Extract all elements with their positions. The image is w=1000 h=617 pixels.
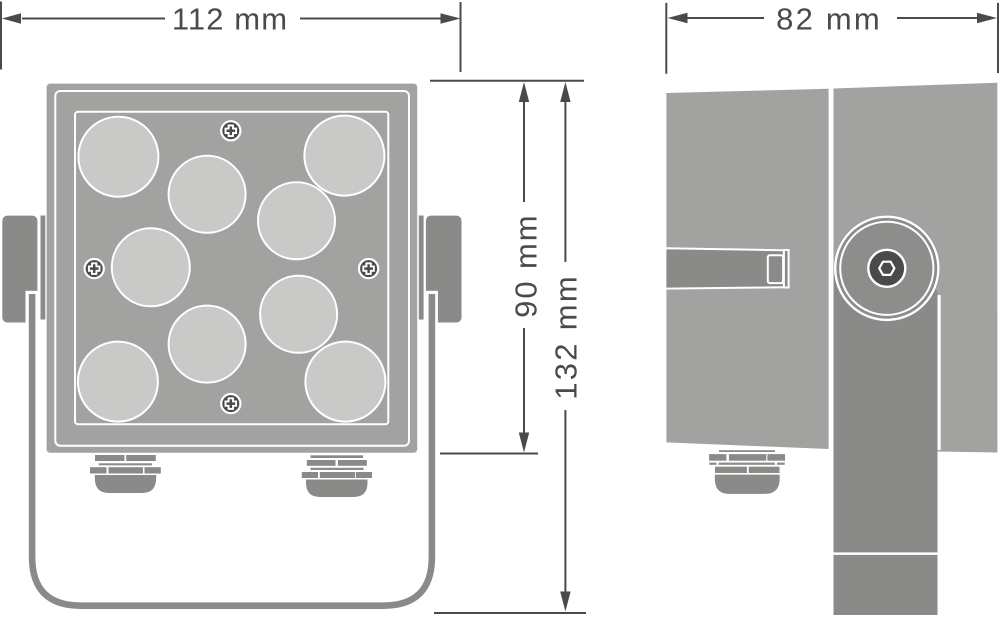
svg-text:82 mm: 82 mm [776, 2, 882, 37]
svg-text:112 mm: 112 mm [172, 2, 288, 37]
svg-text:132 mm: 132 mm [549, 274, 584, 400]
svg-text:90 mm: 90 mm [509, 214, 544, 318]
